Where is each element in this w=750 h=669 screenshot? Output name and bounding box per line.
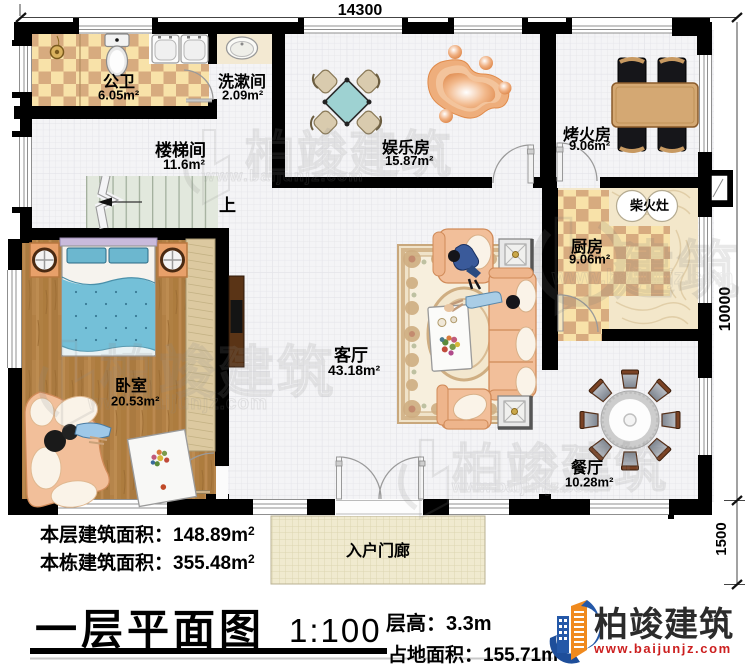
- svg-text:9.06m²: 9.06m²: [569, 252, 611, 267]
- svg-text:www.baijunjz.com: www.baijunjz.com: [551, 266, 733, 289]
- svg-text:10.28m²: 10.28m²: [565, 475, 614, 490]
- svg-text:本层建筑面积：148.89m2: 本层建筑面积：148.89m2: [40, 523, 255, 546]
- svg-text:柏竣建筑: 柏竣建筑: [594, 605, 734, 644]
- svg-text:6.05m²: 6.05m²: [98, 88, 140, 103]
- svg-text:9.06m²: 9.06m²: [569, 138, 611, 153]
- svg-text:11.6m²: 11.6m²: [163, 157, 206, 172]
- svg-text:43.18m²: 43.18m²: [328, 362, 380, 378]
- svg-text:1:100: 1:100: [289, 612, 382, 649]
- svg-text:1500: 1500: [713, 522, 730, 555]
- svg-text:柴火灶: 柴火灶: [629, 198, 669, 213]
- svg-text:层高：3.3m: 层高：3.3m: [386, 611, 492, 635]
- svg-text:卧室: 卧室: [115, 376, 147, 395]
- svg-text:2.09m²: 2.09m²: [222, 88, 264, 103]
- svg-text:上: 上: [219, 196, 236, 215]
- svg-text:一层平面图: 一层平面图: [35, 606, 265, 653]
- svg-text:www.baijunjz.com: www.baijunjz.com: [201, 168, 364, 185]
- svg-text:14300: 14300: [338, 2, 383, 19]
- svg-text:20.53m²: 20.53m²: [111, 394, 160, 409]
- svg-text:本栋建筑面积：355.48m2: 本栋建筑面积：355.48m2: [40, 551, 255, 574]
- svg-text:15.87m²: 15.87m²: [385, 153, 434, 168]
- svg-text:入户门廊: 入户门廊: [346, 541, 410, 560]
- svg-text:占地面积：155.71m2: 占地面积：155.71m2: [388, 643, 565, 666]
- svg-text:www.baijunjz.com: www.baijunjz.com: [593, 641, 732, 656]
